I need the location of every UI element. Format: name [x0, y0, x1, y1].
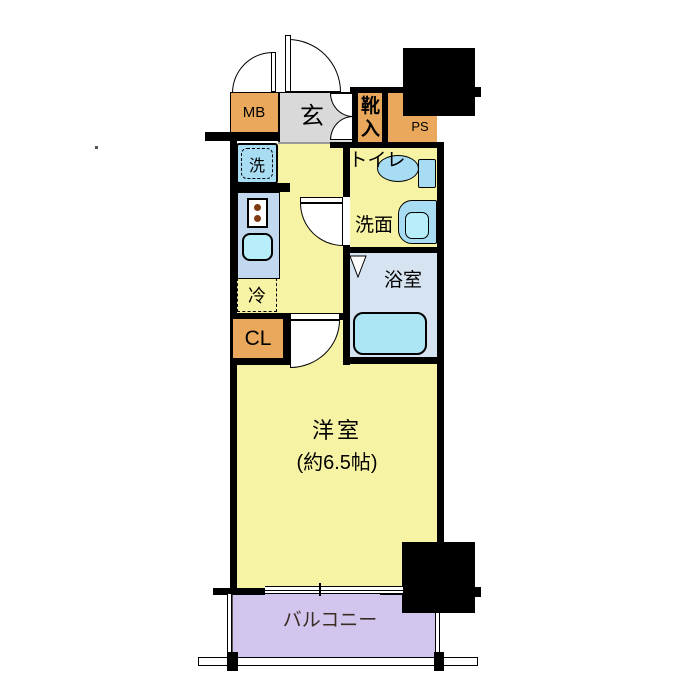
entrance-child-door-arc	[232, 52, 273, 93]
wall	[213, 588, 265, 595]
washroom-door-leaf	[300, 197, 343, 203]
closet-label: CL	[245, 327, 272, 351]
meter-box-label: MB	[230, 105, 278, 122]
bathroom-label: 浴室	[377, 271, 429, 292]
refrigerator-space: 冷	[237, 278, 277, 312]
washer-label: 洗	[249, 152, 265, 176]
balcony-label: バルコニー	[268, 611, 392, 632]
bathroom-door-marker	[349, 255, 367, 278]
balcony-rail-right	[435, 612, 440, 655]
wall	[382, 87, 388, 142]
fridge-label: 冷	[248, 282, 266, 308]
main-room-door-leaf	[290, 313, 340, 320]
shaft-block-top	[403, 48, 475, 116]
wall	[283, 313, 290, 365]
balcony-rail-left	[227, 593, 232, 655]
entrance-label: 玄	[284, 104, 340, 130]
entrance-step-line	[278, 142, 330, 144]
window-latch-tick	[319, 583, 321, 596]
pipe-space-label: PS	[403, 120, 437, 134]
entrance-child-door-leaf	[271, 52, 276, 92]
entrance-main-door-leaf	[285, 35, 291, 92]
wall	[343, 357, 444, 364]
balcony-post-left	[227, 652, 238, 671]
washroom-label: 洗面	[345, 216, 403, 237]
closet: CL	[233, 319, 283, 358]
shaft-block-top-notch	[475, 87, 481, 97]
balcony-sliding-window	[265, 586, 403, 594]
toilet-tank	[418, 159, 436, 188]
main-room-label: 洋室	[300, 419, 374, 443]
stove-burners	[247, 198, 268, 228]
print-artifact-dot	[95, 146, 98, 149]
entrance-main-door-arc	[288, 39, 341, 92]
shoe-storage-label: 靴入	[359, 95, 382, 143]
shaft-block-bottom	[402, 542, 475, 613]
wall	[230, 358, 290, 365]
kitchen-sink	[242, 233, 273, 261]
bathtub	[353, 312, 427, 355]
wall	[205, 132, 278, 141]
balcony-post-right	[434, 652, 444, 671]
floor-plan: 洗 冷 CL MB 玄 靴入 PS トイレ 洗面 浴室 洋室 (約6.5帖) バ…	[0, 0, 700, 700]
washbasin-bowl	[405, 212, 429, 239]
washing-machine-label-box: 洗	[241, 148, 273, 179]
washing-machine-space: 洗	[236, 143, 278, 184]
window-center-line	[265, 590, 403, 591]
burner-dot	[254, 204, 261, 211]
shaft-block-bottom-notch	[475, 587, 481, 597]
wall	[343, 247, 444, 253]
main-room-size-label: (約6.5帖)	[272, 452, 402, 474]
wall	[437, 142, 444, 590]
pipe-space-area	[388, 93, 403, 142]
wall	[350, 87, 405, 93]
burner-dot	[254, 215, 261, 222]
toilet-label: トイレ	[345, 151, 409, 172]
wall	[230, 183, 290, 192]
